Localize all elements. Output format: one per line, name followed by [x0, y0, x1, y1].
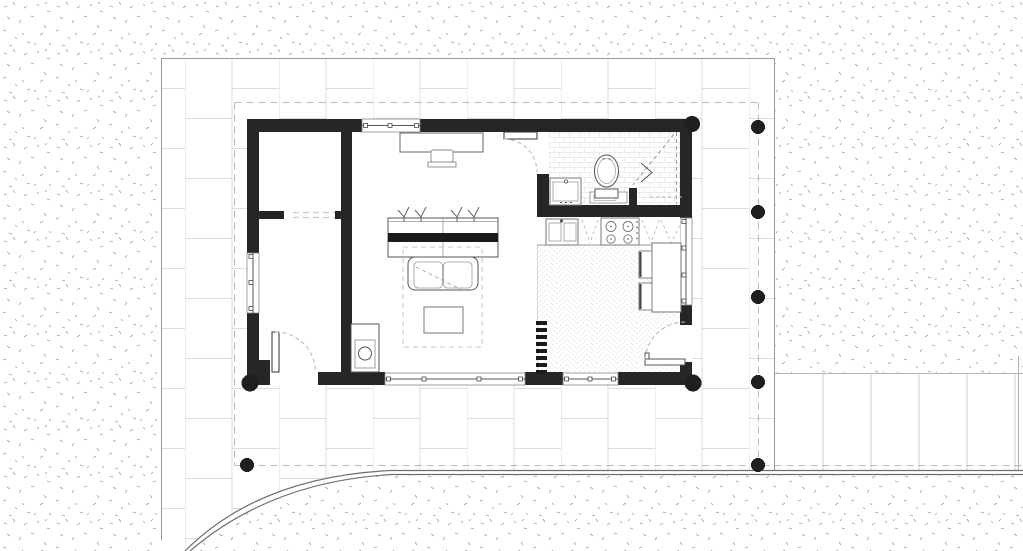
grass-right	[775, 58, 1023, 373]
porch-post-6	[240, 458, 254, 472]
kitchen-sink-faucet	[560, 220, 563, 223]
bath-vanity-faucet	[564, 180, 567, 183]
floor-plan-canvas	[0, 0, 1023, 551]
corner-column-ne	[684, 116, 700, 132]
desk-chair	[431, 150, 453, 162]
wall-north-left	[247, 119, 362, 132]
corner-column-se	[685, 375, 702, 392]
desk-chair-base	[428, 162, 456, 167]
porch-post-2	[751, 205, 765, 219]
dining-table	[652, 243, 681, 312]
wall-south-1	[318, 372, 385, 385]
entry-door-leaf	[645, 359, 685, 365]
toilet-bowl	[595, 155, 619, 187]
wood-stove-burner	[359, 347, 372, 360]
corner-column-sw	[242, 375, 259, 392]
floor-plan-svg	[0, 0, 1023, 551]
wall-shower-stub	[629, 188, 637, 205]
coffee-table	[424, 307, 463, 333]
grass-left	[0, 0, 161, 551]
wall-bath-south	[537, 205, 692, 217]
toilet-tank	[595, 189, 618, 198]
desk	[400, 133, 483, 152]
porch-post-3	[751, 290, 765, 304]
wall-north-right	[420, 119, 692, 132]
wall-west-upper	[247, 119, 259, 253]
porch-post-5	[751, 458, 765, 472]
console-black-band	[388, 233, 498, 242]
wall-room-divider-stub	[259, 211, 284, 219]
wall-east-upper	[680, 119, 692, 218]
driveway-slabs	[775, 373, 1023, 471]
grass-top	[161, 0, 1023, 58]
porch-post-4	[751, 375, 765, 389]
wall-interior-main	[341, 132, 352, 372]
porch-post-1	[751, 120, 765, 134]
wall-room-divider-nub	[335, 211, 341, 219]
bedroom-door-leaf	[272, 332, 279, 372]
stove	[601, 218, 639, 245]
bathroom-door-leaf	[504, 132, 537, 139]
